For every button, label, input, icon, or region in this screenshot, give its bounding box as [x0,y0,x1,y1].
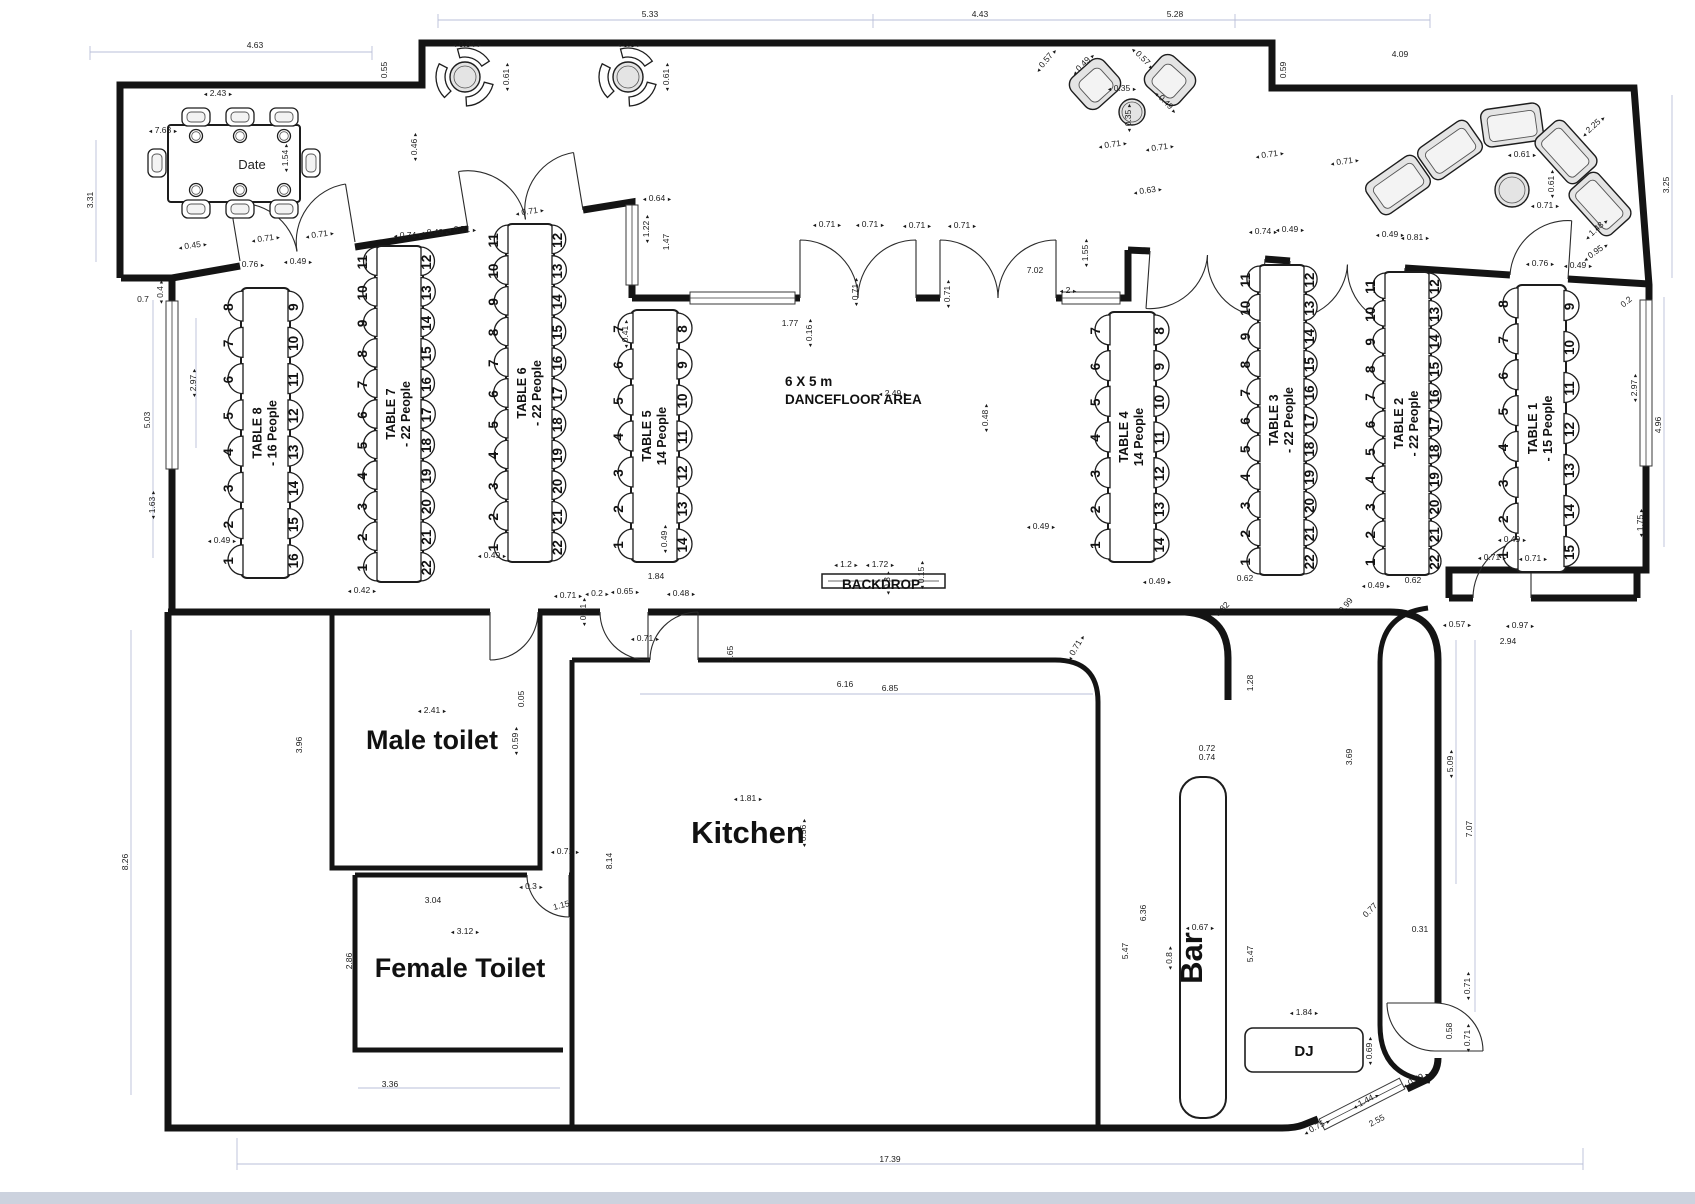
chair-number: 12 [419,255,434,270]
head-table-label: Date [238,157,265,172]
banquet-table: TABLE 1- 15 People876543219101112131415 [1496,285,1579,572]
chair-number: 10 [286,336,301,351]
chair-number: 1 [611,541,626,549]
chair-number: 20 [419,499,434,514]
chair-number: 4 [221,448,236,456]
dim-label: ◄ 2.97 ► [188,368,198,399]
female-toilet-label: Female Toilet [375,953,546,983]
chair-number: 21 [550,509,565,525]
dim-label: ◄ 0.71 ► [514,204,546,218]
chair-number: 6 [486,390,501,398]
dim-label: ◄ 2.97 ► [1629,373,1639,404]
chair-number: 19 [1302,470,1317,485]
dim-label: 6.36 [1138,904,1148,921]
chair-number: 11 [1238,272,1253,287]
head-chair-seat [275,204,293,214]
cocktail-table-top [613,62,643,92]
chair-number: 20 [1302,498,1317,513]
chair-number: 18 [1427,444,1442,460]
dim-label: ◄ 0.71 ► [1254,147,1286,161]
dim-label: ◄ 0.71 ► [855,219,886,229]
chair-number: 3 [1238,501,1253,509]
chair-number: 2 [221,521,236,529]
dim-label: 6.16 [837,679,854,689]
chair-number: 16 [286,553,301,569]
dim-label: ◄ 0.61 ► [1507,149,1538,159]
chair-number: 5 [611,397,626,405]
chair-number: 7 [1496,336,1511,344]
chair-number: 13 [286,444,301,460]
chair-number: 13 [1152,501,1167,517]
chair-number: 2 [1238,530,1253,538]
dim-label: 0.31 [1412,924,1429,934]
chair-number: 5 [1496,407,1511,415]
chair-number: 13 [675,501,690,517]
dim-label: 0.77 [1360,900,1379,919]
dim-label: ◄ 0.49 ► [1361,580,1392,590]
chair-number: 8 [1496,300,1511,308]
dim-label: ◄ 0.2 ► [584,588,610,598]
dim-label: ◄ 0.61 ► [661,62,671,93]
chair-number: 2 [611,505,626,513]
chair-number: 1 [221,557,236,565]
head-chair-seat [231,112,249,122]
chair-number: 12 [675,465,690,480]
chair-number: 7 [486,360,501,368]
dim-label: 4.09 [1392,49,1409,59]
chair-number: 17 [1427,417,1442,432]
dim-label: ◄ 0.71 ► [1462,1023,1472,1054]
dim-label: ◄ 0.71 ► [902,220,933,230]
dim-label: 4.96 [1653,416,1663,433]
dim-label: ◄ 0.48 ► [980,403,990,434]
dim-label: 17.39 [879,1154,901,1164]
dancefloor-name-label: DANCEFLOOR AREA [785,392,922,407]
dim-label: 3.36 [382,1079,399,1089]
chair-number: 2 [355,533,370,541]
chair-number: 7 [221,340,236,348]
male-toilet-label: Male toilet [366,725,498,755]
dim-label: ◄ 0.71 ► [553,590,584,600]
chair-number: 17 [550,386,565,401]
chair-number: 13 [1427,306,1442,322]
dim-label: ◄ 1.55 ► [1080,238,1090,269]
chair-number: 16 [419,376,434,392]
chair-number: 12 [1302,273,1317,288]
chair-number: 6 [1088,362,1103,370]
dim-label: 1.15 [552,898,571,912]
chair-number: 11 [286,372,301,387]
floorplan: TABLE 1- 15 People876543219101112131415T… [0,0,1695,1204]
dim-label: 0.05 [516,690,526,707]
table-label: TABLE 7- 22 People [384,381,413,447]
chair-number: 7 [355,381,370,389]
dim-label: 1.65 [725,645,735,662]
banquet-table: TABLE 414 People7654321891011121314 [1088,312,1169,562]
dim-label: 8.14 [604,852,614,869]
dim-label: ◄ 0.71 ► [578,597,588,628]
chair-number: 18 [1302,441,1317,457]
head-chair-seat [306,154,316,172]
chair-number: 17 [419,407,434,422]
table-label: TABLE 514 People [640,407,669,465]
dim-label: ◄ 0.71 ► [550,846,581,856]
chair-number: 4 [1238,473,1253,481]
chair-number: 10 [675,393,690,408]
dim-label: ◄ 0.4 ► [155,279,165,305]
chair-number: 15 [1302,357,1317,373]
dim-label: ◄ 0.63 ► [1132,183,1164,197]
dim-label: ◄ 0.57 ► [1442,619,1473,629]
chair-number: 8 [1363,365,1378,373]
chair-number: 14 [419,315,434,331]
chair-number: 4 [355,472,370,480]
dim-label: 7.02 [1027,265,1044,275]
dim-label: ◄ 0.49 ► [207,535,238,545]
chair-number: 11 [1562,381,1577,396]
chair-number: 5 [221,412,236,420]
chair-number: 21 [419,529,434,545]
chair-number: 6 [1363,420,1378,428]
dj-label: DJ [1294,1043,1313,1060]
chair-number: 10 [1363,307,1378,322]
dim-label: ◄ 0.16 ► [804,318,814,349]
dim-label: ◄ 0.76 ► [1525,258,1556,268]
banquet-table: TABLE 6- 22 People1110987654321121314151… [486,224,566,562]
chair-number: 10 [486,264,501,279]
head-chair-seat [152,154,162,172]
chair-number: 4 [1496,443,1511,451]
dim-label: ◄ 0.57 ► [1032,45,1059,75]
chair-number: 4 [1088,434,1103,442]
dim-label: 0.62 [1237,573,1254,583]
dim-label: ◄ 0.71 ► [1462,971,1472,1002]
chair-number: 1 [1088,541,1103,549]
chair-number: 6 [611,361,626,369]
dim-label: 3.69 [1344,748,1354,765]
floorplan-svg: TABLE 1- 15 People876543219101112131415T… [0,0,1695,1204]
chair-number: 3 [486,482,501,490]
bench-seat [436,64,451,98]
chair-number: 9 [355,320,370,328]
chair-number: 3 [1088,469,1103,477]
chair-number: 10 [1152,395,1167,410]
chair-number: 21 [1427,527,1442,543]
table-label: TABLE 1- 15 People [1526,395,1555,461]
dim-label: 8.26 [120,853,130,870]
dim-label: ◄ 0.42 ► [347,585,378,595]
chair-number: 10 [1562,340,1577,355]
dim-label: 0.55 [379,61,389,78]
chair-number: 3 [221,484,236,492]
chair-number: 22 [419,560,434,575]
head-chair-seat [275,112,293,122]
chair-number: 15 [419,346,434,362]
table-label: TABLE 3- 22 People [1267,387,1296,453]
chair-number: 10 [355,285,370,300]
cocktail-table-top [450,62,480,92]
chair-number: 14 [286,480,301,496]
chair-number: 7 [1088,327,1103,335]
chair-number: 8 [221,303,236,311]
chair-number: 9 [1152,363,1167,371]
dim-label: ◄ 1.72 ► [865,559,896,569]
banquet-table: TABLE 3- 22 People1110987654321121314151… [1238,265,1317,575]
chair-number: 19 [1427,472,1442,487]
dim-label: ◄ 0.8 ► [1164,945,1174,971]
chair-number: 1 [355,563,370,571]
dim-label: ◄ 0.49 ► [283,256,314,266]
chair-number: 3 [355,502,370,510]
chair-number: 3 [611,469,626,477]
chair-number: 3 [1496,479,1511,487]
coffee-table [1495,173,1529,207]
dim-label: ◄ 0.71 ► [1063,632,1087,663]
chair-number: 14 [550,294,565,310]
chair-number: 20 [550,479,565,494]
chair-number: 4 [486,451,501,459]
dim-label: 0.7 [137,294,149,304]
dim-label: ◄ 0.71 ► [1144,140,1176,154]
chair-number: 22 [1302,554,1317,569]
dim-label: ◄ 5.09 ► [1445,749,1455,780]
chair-number: 9 [286,303,301,311]
table-label: TABLE 8- 16 People [251,400,280,466]
dim-label: ◄ 0.71 ► [447,224,478,234]
chair-number: 2 [1363,531,1378,539]
dim-label: 1.28 [1245,674,1255,691]
dim-label: 5.28 [1167,9,1184,19]
dim-label: ◄ 0.74 ► [393,230,424,240]
chair-number: 5 [486,420,501,428]
dim-label: ◄ 0.49 ► [1142,576,1173,586]
chair-number: 9 [1363,338,1378,346]
chair-number: 13 [419,285,434,301]
chair-number: 16 [550,355,565,371]
head-chair-seat [187,112,205,122]
dim-label: ◄ 0.71 ► [947,220,978,230]
chair-number: 8 [486,328,501,336]
dim-label: ◄ 2 ► [1059,285,1078,295]
table-label: TABLE 6- 22 People [515,360,544,426]
dim-label: 0.74 [1199,752,1216,762]
dim-label: ◄ 1.2 ► [833,559,859,569]
dim-label: ◄ 3.12 ► [450,926,481,936]
kitchen-label: Kitchen [691,815,805,850]
chair-number: 19 [419,469,434,484]
chair-number: 13 [1302,300,1317,316]
dim-label: ◄ 0.46 ► [409,132,419,163]
dim-label: 2.55 [1367,1112,1387,1129]
banquet-table: TABLE 8- 16 People8765432191011121314151… [221,288,303,578]
dim-label: ◄ 0.61 ► [501,62,511,93]
dancefloor-size-label: 6 X 5 m [785,374,832,389]
dim-label: 1.77 [782,318,799,328]
dim-label: ◄ 0.71 ► [1097,137,1129,151]
chair-number: 12 [286,408,301,423]
chair-number: 5 [1238,445,1253,453]
chair-number: 4 [1363,475,1378,483]
bar-label: Bar [1174,932,1209,984]
dim-label: ◄ 1.75 ► [1635,508,1645,539]
chair-number: 15 [1427,361,1442,377]
chair-number: 12 [1152,466,1167,481]
dim-label: 3.31 [85,191,95,208]
window-edge [0,1192,1695,1204]
head-chair-seat [187,204,205,214]
head-chair-seat [231,204,249,214]
dim-label: ◄ 0.57 ► [1129,44,1158,73]
dim-label: ◄ 0.71 ► [850,277,860,308]
chair-number: 14 [1302,328,1317,344]
dim-label: ◄ 0.74 ► [1248,226,1279,236]
chair-number: 9 [486,298,501,306]
chair-number: 20 [1427,500,1442,515]
chair-number: 7 [1238,389,1253,397]
chair-number: 14 [675,537,690,553]
chair-number: 18 [550,417,565,433]
cocktail-table [436,48,493,106]
chair-number: 19 [550,448,565,463]
dim-label: ◄ 0.69 ► [1364,1036,1374,1067]
chair-number: 11 [1363,279,1378,294]
chair-number: 8 [355,350,370,358]
dim-label: 0.58 [1444,1022,1454,1039]
chair-number: 8 [1152,327,1167,335]
dim-label: 0.59 [1278,61,1288,78]
dim-label: ◄ 0.48 ► [666,588,697,598]
chair-number: 17 [1302,413,1317,428]
chair-number: 13 [1562,463,1577,479]
chair-number: 4 [611,433,626,441]
dim-label: ◄ 1.84 ► [1289,1007,1320,1017]
chair-number: 11 [355,255,370,270]
chair-number: 5 [1088,398,1103,406]
chair-number: 2 [1088,506,1103,514]
chair-number: 10 [1238,301,1253,316]
banquet-table: TABLE 7- 22 People1110987654321121314151… [355,246,435,582]
dim-label: 5.47 [1120,942,1130,959]
chair-number: 5 [1363,448,1378,456]
dim-label: 0.2 [1618,294,1634,309]
dim-label: ◄ 0.49 ► [1275,224,1306,234]
dim-label: ◄ 0.71 ► [630,633,661,643]
chair-number: 12 [1562,422,1577,437]
chair-number: 9 [675,361,690,369]
chair-number: 8 [675,325,690,333]
dim-label: ◄ 0.71 ► [812,219,843,229]
dim-label: ◄ 0.49 ► [420,227,451,237]
dim-label: ◄ 0.71 ► [304,227,336,241]
dim-label: 0.62 [1405,575,1422,585]
dim-label: 3.96 [294,736,304,753]
dim-label: ◄ 0.59 ► [510,726,520,757]
dim-label: 5.47 [1245,945,1255,962]
chair-number: 6 [1496,371,1511,379]
chair-number: 18 [419,438,434,454]
dim-label: ◄ 0.61 ► [1546,169,1556,200]
chair-number: 5 [355,441,370,449]
dim-label: 6.85 [882,683,899,693]
dim-label: 5.03 [142,411,152,428]
dim-label: ◄ 1.22 ► [641,214,651,245]
dim-label: ◄ 0.65 ► [610,586,641,596]
chair-number: 14 [1427,334,1442,350]
cocktail-table [599,48,656,106]
dim-label: ◄ 0.45 ► [177,238,209,252]
chair-number: 2 [486,513,501,521]
chair-number: 22 [1427,555,1442,570]
banquet-table: TABLE 2- 22 People1110987654321121314151… [1363,272,1442,575]
chair-number: 7 [1363,393,1378,401]
table-label: TABLE 414 People [1117,408,1146,466]
dim-label: 2.86 [344,952,354,969]
chair-number: 3 [1363,503,1378,511]
dim-label: ◄ 0.76 ► [235,259,266,269]
chair-number: 15 [550,325,565,341]
chair-number: 8 [1238,360,1253,368]
dim-label: ◄ 0.97 ► [1505,620,1536,630]
chair-number: 11 [486,233,501,248]
chair-number: 11 [1152,430,1167,445]
chair-number: 9 [1562,303,1577,311]
dim-label: ◄ 0.71 ► [250,231,282,245]
chair-number: 1 [1363,558,1378,566]
chair-number: 12 [1427,279,1442,294]
dim-label: 4.63 [247,40,264,50]
dim-label: ◄ 2.43 ► [203,88,234,98]
dim-label: 3.04 [425,895,442,905]
chair-number: 12 [550,233,565,248]
dim-label: ◄ 1.63 ► [147,490,157,521]
chair-number: 2 [1496,515,1511,523]
dim-label: ◄ 0.3 ► [518,881,544,891]
table-label: TABLE 2- 22 People [1392,390,1421,456]
dim-label: ◄ 0.71 ► [942,279,952,310]
chair-number: 9 [1238,333,1253,341]
dim-label: ◄ 2.41 ► [417,705,448,715]
dim-label: ◄ 0.49 ► [1026,521,1057,531]
chair-number: 16 [1302,385,1317,401]
chair-number: 6 [221,375,236,383]
chair-number: 21 [1302,526,1317,542]
dim-label: 7.07 [1464,820,1474,837]
chair-number: 6 [1238,417,1253,425]
dim-label: ◄ 1.81 ► [733,793,764,803]
dim-label: 4.43 [972,9,989,19]
chair-number: 11 [675,429,690,444]
dim-label: ◄ 2.25 ► [1578,112,1607,140]
dim-label: ◄ 0.71 ► [1329,154,1361,168]
chair-number: 16 [1427,389,1442,405]
dim-label: 1.84 [648,571,665,581]
bench-seat [599,64,614,98]
chair-number: 15 [1562,545,1577,561]
chair-number: 14 [1562,504,1577,520]
chair-number: 14 [1152,537,1167,553]
dim-label: 3.25 [1661,176,1671,193]
chair-number: 22 [550,540,565,555]
chair-number: 13 [550,263,565,279]
dim-label: ◄ 0.64 ► [642,193,673,203]
chair-number: 6 [355,411,370,419]
dim-label: 5.33 [642,9,659,19]
dim-label: ◄ 0.71 ► [1530,200,1561,210]
chair-number: 1 [1238,558,1253,566]
dim-label: 1.47 [661,233,671,250]
backdrop-label: BACKDROP [842,577,920,592]
chair-number: 15 [286,517,301,533]
